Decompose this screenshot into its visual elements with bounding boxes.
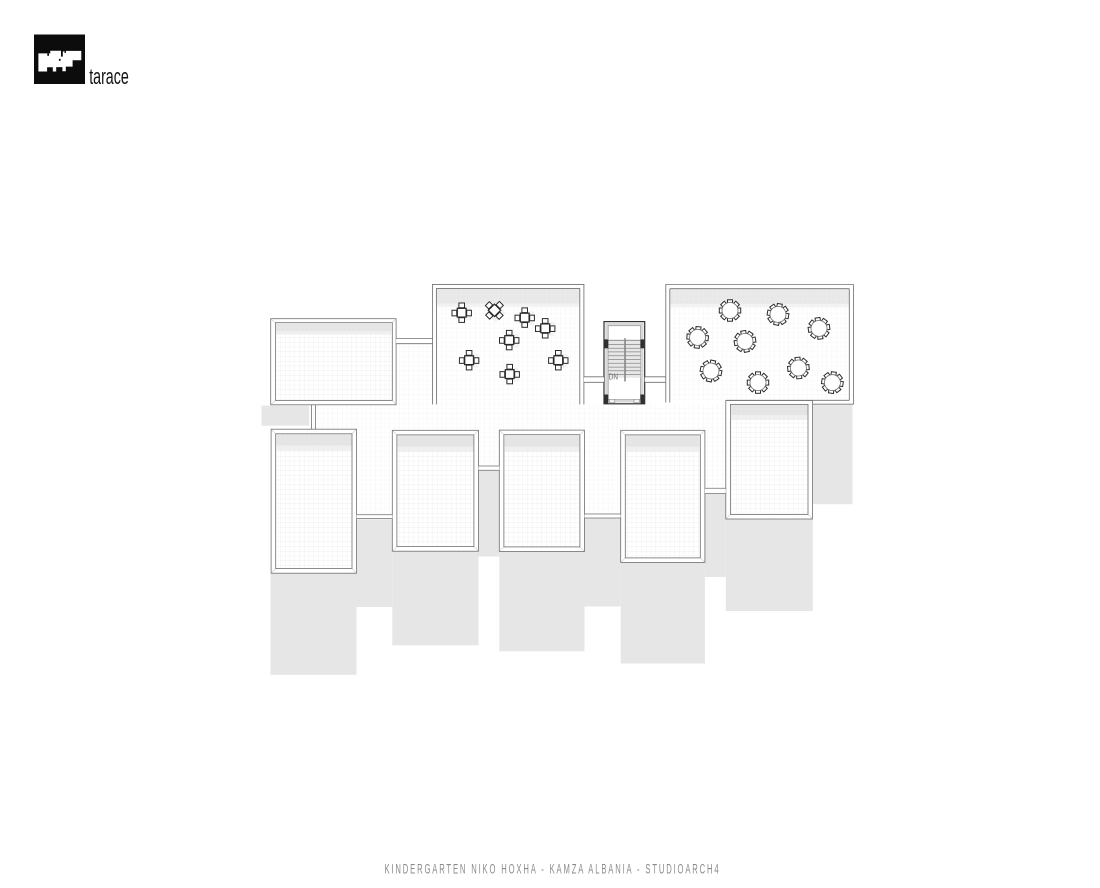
svg-text:tarace: tarace	[89, 64, 129, 89]
svg-text:DN: DN	[609, 372, 618, 382]
svg-text:KINDERGARTEN NIKO HOXHA - KAMZ: KINDERGARTEN NIKO HOXHA - KAMZA ALBANIA …	[385, 860, 721, 876]
